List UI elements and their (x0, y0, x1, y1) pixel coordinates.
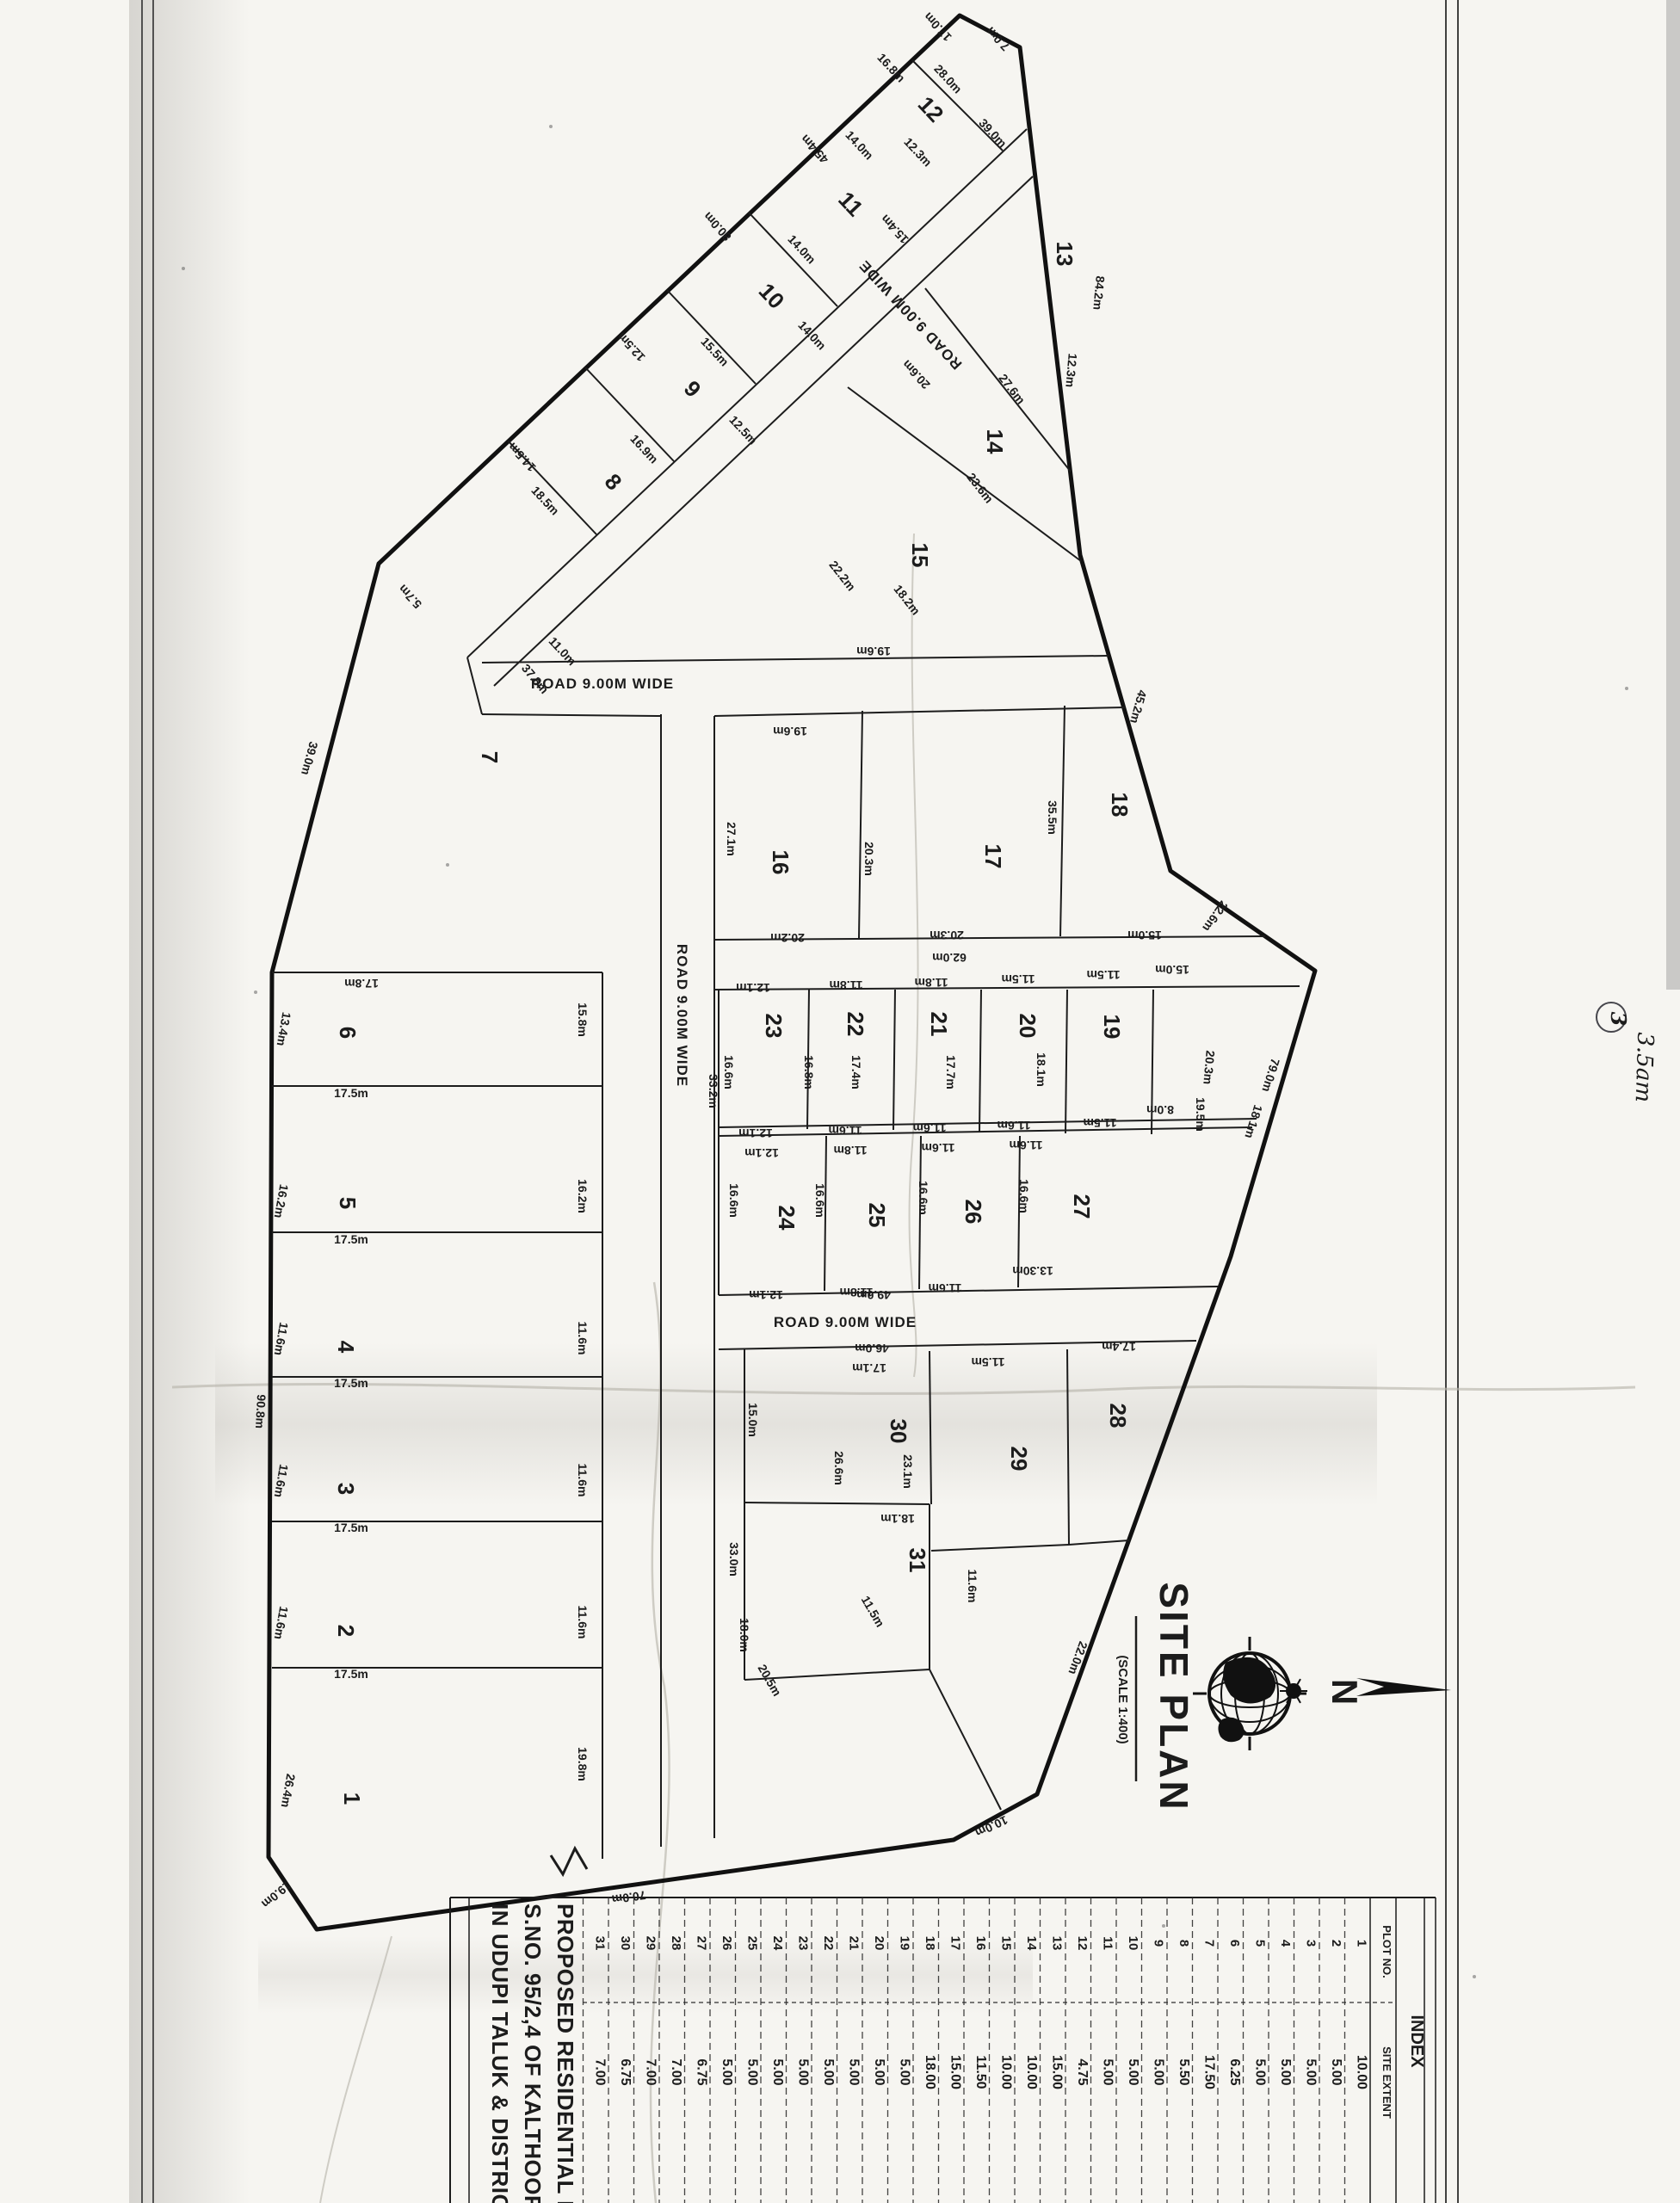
index-plot-no-29: 29 (643, 1936, 658, 1951)
dim-label-58: 12.1m (744, 1146, 779, 1160)
index-extent-21: 5.00 (846, 2058, 861, 2085)
dim-label-36: 15.0m (1127, 929, 1162, 942)
index-title: INDEX (1407, 2015, 1426, 2068)
fold-shadow-band (215, 1342, 1377, 1506)
index-extent-1: 10.00 (1354, 2055, 1368, 2089)
plot-number-label-29: 29 (1006, 1447, 1032, 1472)
index-extent-22: 5.00 (821, 2058, 836, 2085)
dim-label-53: 11.6m (997, 1119, 1031, 1132)
dim-label-57: 33.2m (707, 1074, 720, 1108)
dim-label-48: 18.1m (1035, 1052, 1048, 1087)
index-plot-no-6: 6 (1227, 1940, 1242, 1947)
legend-scale: (SCALE 1:400) (1115, 1655, 1130, 1743)
dim-label-38: 12.1m (736, 981, 770, 995)
dim-label-80: 26.6m (832, 1451, 846, 1485)
dim-label-44: 16.6m (722, 1055, 736, 1089)
index-extent-26: 5.00 (720, 2058, 734, 2085)
dim-label-34: 20.2m (770, 931, 805, 945)
index-plot-no-27: 27 (694, 1936, 708, 1951)
index-plot-no-13: 13 (1049, 1936, 1064, 1951)
dim-label-42: 11.5m (1087, 968, 1121, 982)
dim-label-39: 11.8m (830, 978, 863, 992)
paper-background (0, 0, 1680, 2203)
plot-number-label-19: 19 (1099, 1015, 1125, 1040)
index-plot-no-18: 18 (923, 1936, 937, 1951)
index-extent-8: 5.50 (1177, 2058, 1191, 2085)
dim-label-74: 17.1m (852, 1361, 886, 1375)
index-plot-no-12: 12 (1075, 1936, 1090, 1951)
plot-number-label-17: 17 (980, 844, 1006, 869)
index-plot-no-4: 4 (1278, 1940, 1293, 1947)
plot-number-label-22: 22 (843, 1012, 868, 1037)
dim-label-66: 12.1m (749, 1288, 783, 1302)
index-extent-31: 7.00 (592, 2058, 607, 2085)
index-extent-12: 4.75 (1075, 2058, 1090, 2085)
dim-label-72: 49.0m (856, 1288, 891, 1302)
dim-label-93: 17.5m (334, 1376, 368, 1390)
handwritten-note: 3.5am (1630, 1032, 1658, 1103)
dim-label-73: 46.0m (855, 1342, 889, 1355)
dim-label-61: 11.6m (1010, 1139, 1043, 1152)
dim-label-64: 16.6m (917, 1181, 930, 1215)
index-plot-no-31: 31 (592, 1936, 607, 1951)
index-plot-no-1: 1 (1354, 1940, 1368, 1947)
dim-label-79: 15.0m (746, 1403, 760, 1437)
dim-label-55: 8.0m (1146, 1103, 1174, 1117)
dim-label-76: 17.4m (1102, 1340, 1136, 1354)
index-extent-4: 5.00 (1278, 2058, 1293, 2085)
dim-label-29: 19.6m (856, 645, 891, 658)
index-plot-no-23: 23 (795, 1936, 810, 1951)
plot-number-label-2: 2 (333, 1625, 359, 1637)
index-extent-24: 5.00 (770, 2058, 785, 2085)
dim-label-69: 13.30m (1012, 1264, 1053, 1278)
plot-number-label-18: 18 (1107, 793, 1133, 818)
index-extent-16: 11.50 (973, 2055, 988, 2089)
index-extent-10: 5.00 (1126, 2058, 1140, 2085)
index-plot-no-25: 25 (744, 1936, 759, 1951)
dim-label-104: 11.6m (576, 1606, 590, 1639)
dim-label-82: 18.1m (880, 1512, 915, 1526)
index-plot-no-28: 28 (669, 1936, 683, 1951)
dim-label-105: 19.8m (576, 1747, 590, 1781)
dim-label-89: 15.8m (576, 1003, 590, 1037)
scan-speck-6 (1162, 1924, 1165, 1928)
dim-label-94: 17.5m (334, 1521, 368, 1534)
dim-label-51: 11.6m (829, 1124, 862, 1138)
index-extent-18: 18.00 (923, 2055, 937, 2089)
plot-number-label-6: 6 (335, 1027, 361, 1039)
plot-number-label-15: 15 (907, 543, 933, 568)
dim-label-84: 33.0m (727, 1542, 741, 1577)
index-plot-no-7: 7 (1201, 1940, 1216, 1947)
road-label-1: ROAD 9.00M WIDE (531, 676, 674, 692)
scan-shadow-left (129, 0, 250, 2203)
scan-speck-1 (549, 125, 553, 128)
scan-speck-3 (1473, 1975, 1476, 1978)
dim-label-63: 16.6m (813, 1183, 827, 1218)
handwritten-circled-number: 3 (1606, 1012, 1631, 1027)
dim-label-35: 20.3m (930, 929, 964, 942)
dim-label-45: 16.8m (802, 1055, 816, 1089)
plot-number-label-24: 24 (774, 1206, 800, 1231)
drawing-title-line-1: PROPOSED RESIDENTIAL LAYOUT AT (553, 1904, 578, 2203)
road-label-2: ROAD 9.00M WIDE (774, 1314, 917, 1330)
index-plot-no-22: 22 (821, 1936, 836, 1951)
index-plot-no-11: 11 (1100, 1936, 1115, 1950)
plot-number-label-5: 5 (335, 1197, 361, 1209)
dim-label-37: 62.0m (932, 951, 967, 965)
scanned-site-plan-document: 1234567891011121314151617181920212223242… (0, 0, 1680, 2203)
index-header-site-extent: SITE EXTENT (1380, 2046, 1393, 2119)
plot-number-label-26: 26 (960, 1200, 986, 1225)
scan-edge-right (1666, 0, 1680, 990)
index-plot-no-24: 24 (770, 1936, 785, 1951)
dim-label-68: 11.6m (929, 1281, 962, 1295)
dim-label-30: 19.6m (773, 725, 807, 738)
plot-number-label-31: 31 (905, 1548, 930, 1573)
dim-label-31: 27.1m (725, 822, 738, 856)
index-extent-9: 5.00 (1151, 2058, 1165, 2085)
dim-label-50: 12.1m (738, 1126, 773, 1140)
index-plot-no-2: 2 (1329, 1940, 1343, 1947)
index-plot-no-3: 3 (1303, 1940, 1318, 1947)
index-plot-no-20: 20 (872, 1936, 886, 1951)
dim-label-85: 18.0m (738, 1618, 751, 1652)
index-extent-7: 17.50 (1201, 2055, 1216, 2089)
index-plot-no-16: 16 (973, 1936, 988, 1951)
plot-number-label-20: 20 (1015, 1014, 1041, 1039)
dim-label-75: 11.5m (972, 1355, 1005, 1369)
scan-speck-5 (1625, 687, 1628, 690)
dim-label-88: 17.8m (344, 977, 379, 990)
index-extent-23: 5.00 (795, 2058, 810, 2085)
index-extent-11: 5.00 (1100, 2058, 1115, 2085)
dim-label-56: 19.5m (1194, 1097, 1207, 1132)
index-plot-no-8: 8 (1177, 1940, 1191, 1947)
index-extent-17: 15.00 (948, 2055, 962, 2089)
dim-label-102: 11.6m (576, 1322, 590, 1355)
drawing-title-line-3: IN UDUPI TALUK & DISTRICT. (487, 1904, 513, 2203)
plot-number-label-23: 23 (761, 1014, 787, 1039)
legend-title: SITE PLAN (1152, 1582, 1196, 1811)
index-header-plot-no: PLOT NO. (1380, 1925, 1393, 1978)
dim-label-103: 11.6m (576, 1464, 590, 1497)
dim-label-54: 11.5m (1084, 1116, 1117, 1130)
plot-number-label-27: 27 (1069, 1194, 1095, 1219)
index-extent-19: 5.00 (897, 2058, 911, 2085)
dim-label-92: 17.5m (334, 1232, 368, 1246)
plot-number-label-30: 30 (886, 1419, 911, 1444)
dim-label-33: 35.5m (1046, 800, 1059, 835)
dim-label-46: 17.4m (849, 1055, 863, 1089)
dim-label-101: 16.2m (576, 1179, 590, 1213)
plot-number-label-28: 28 (1105, 1404, 1131, 1429)
index-extent-13: 15.00 (1049, 2055, 1064, 2089)
index-extent-27: 6.75 (694, 2058, 708, 2085)
dim-label-65: 16.6m (1017, 1179, 1031, 1213)
scan-speck-0 (182, 267, 185, 270)
index-plot-no-26: 26 (720, 1936, 734, 1951)
dim-label-91: 17.5m (334, 1086, 368, 1100)
site-plan-drawing: 1234567891011121314151617181920212223242… (0, 0, 1680, 2203)
index-plot-no-17: 17 (948, 1936, 962, 1951)
dim-label-47: 17.7m (944, 1055, 958, 1089)
index-extent-3: 5.00 (1303, 2058, 1318, 2085)
index-plot-no-15: 15 (998, 1936, 1013, 1951)
index-extent-15: 10.00 (998, 2055, 1013, 2089)
dim-label-43: 15.0m (1155, 963, 1189, 977)
plot-number-label-7: 7 (477, 751, 503, 763)
scan-speck-4 (446, 863, 449, 867)
index-plot-no-5: 5 (1252, 1940, 1267, 1947)
plot-number-label-25: 25 (864, 1203, 890, 1228)
plot-number-label-21: 21 (926, 1012, 952, 1037)
index-plot-no-9: 9 (1151, 1940, 1165, 1947)
plot-number-label-13: 13 (1052, 242, 1078, 267)
dim-label-106: 90.8m (253, 1394, 269, 1429)
dim-label-60: 11.6m (922, 1141, 955, 1155)
north-letter: N (1325, 1679, 1365, 1705)
dim-label-59: 11.8m (834, 1144, 868, 1157)
dim-label-32: 20.3m (862, 842, 876, 876)
drawing-title-line-2: S.NO. 95/2,4 OF KALTHOOR VILLAGE (520, 1904, 546, 2203)
index-extent-20: 5.00 (872, 2058, 886, 2085)
plot-number-label-1: 1 (339, 1793, 365, 1805)
index-plot-no-14: 14 (1024, 1936, 1039, 1951)
index-extent-30: 6.75 (618, 2058, 633, 2085)
plot-number-label-16: 16 (768, 850, 794, 875)
dim-label-40: 11.8m (915, 976, 948, 990)
dim-label-83: 11.6m (966, 1570, 979, 1603)
dim-label-52: 11.6m (913, 1121, 947, 1135)
index-plot-no-19: 19 (897, 1936, 911, 1951)
plot-number-label-4: 4 (333, 1341, 359, 1354)
index-extent-6: 6.25 (1227, 2058, 1242, 2085)
dim-label-41: 11.5m (1002, 972, 1035, 986)
road-label-3: ROAD 9.00M WIDE (674, 944, 690, 1087)
index-plot-no-10: 10 (1126, 1936, 1140, 1951)
dim-label-62: 16.6m (727, 1183, 741, 1218)
plot-number-label-14: 14 (982, 429, 1008, 454)
index-plot-no-30: 30 (618, 1936, 633, 1951)
dim-label-95: 17.5m (334, 1667, 368, 1681)
index-extent-25: 5.00 (744, 2058, 759, 2085)
index-extent-2: 5.00 (1329, 2058, 1343, 2085)
index-extent-29: 7.00 (643, 2058, 658, 2085)
index-extent-28: 7.00 (669, 2058, 683, 2085)
index-extent-5: 5.00 (1252, 2058, 1267, 2085)
index-plot-no-21: 21 (846, 1936, 861, 1951)
index-extent-14: 10.00 (1024, 2055, 1039, 2089)
dim-label-81: 23.1m (901, 1454, 915, 1489)
scan-speck-2 (254, 990, 257, 994)
plot-number-label-3: 3 (333, 1483, 359, 1495)
